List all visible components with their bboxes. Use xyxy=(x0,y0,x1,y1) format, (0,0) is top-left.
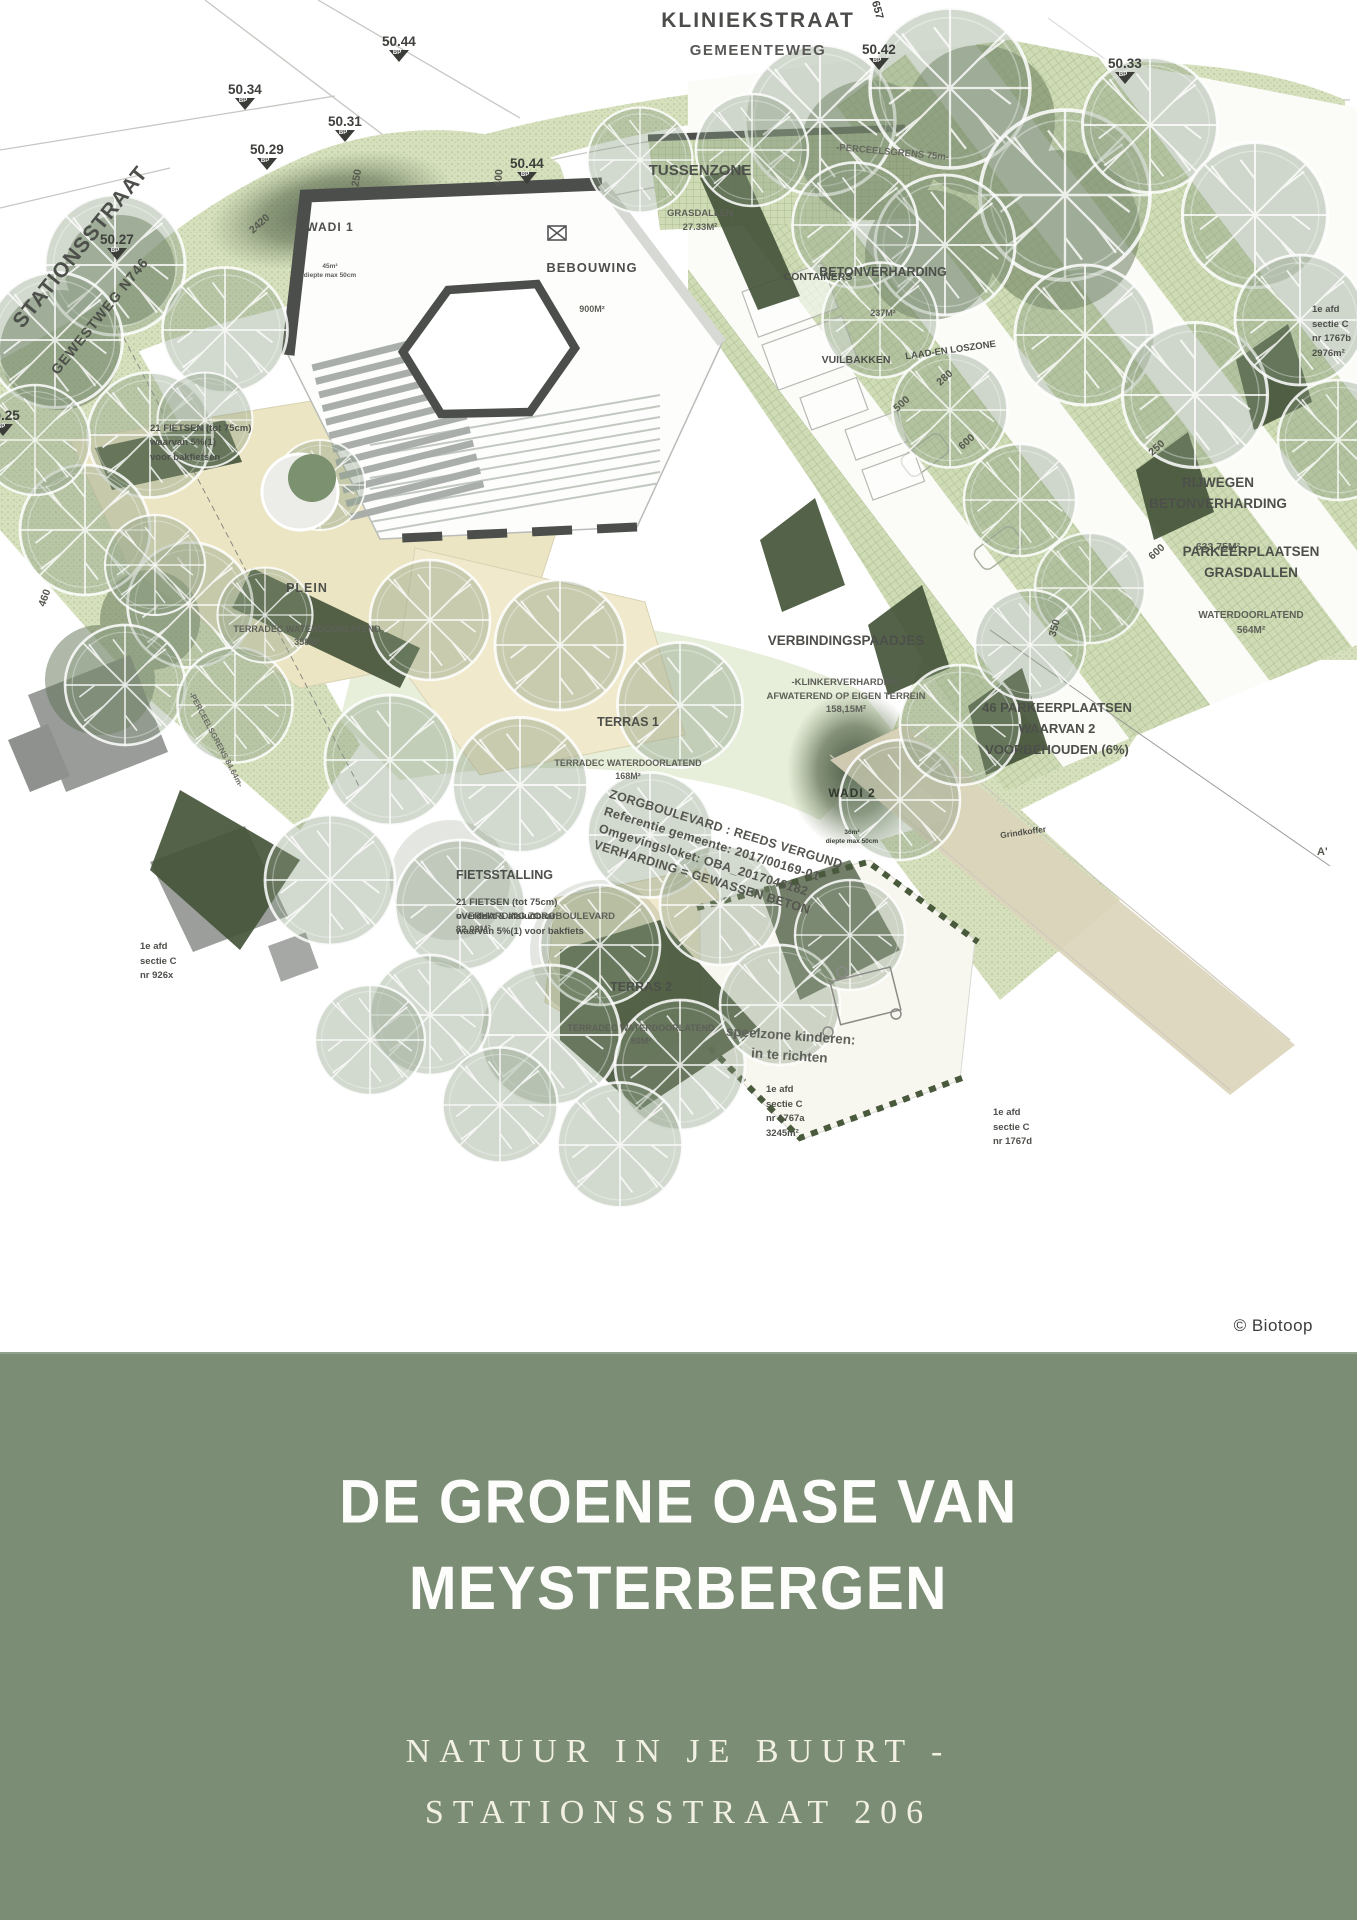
label-wadi2-sub: 36m² diepte max 50cm xyxy=(826,828,878,847)
label-perceelsgrens-top: -PERCEELSGRENS 75m- xyxy=(836,141,950,165)
spot-value: 50.33 xyxy=(1108,56,1142,71)
label-fietsen-plein: 21 FIETSEN (tot 75cm) waarvan 5%(1) voor… xyxy=(150,422,251,465)
spot-value: 657 xyxy=(869,0,885,20)
spot-value: 50.42 xyxy=(862,42,896,57)
label-fietsstalling-title: FIETSSTALLING xyxy=(456,866,615,884)
spot-elevation: 50.27BP xyxy=(100,232,134,260)
label-terras1: TERRAS 1 TERRADEC WATERDOORLATEND 168M² xyxy=(554,690,701,806)
label-wadi1: WADI 1 45m² diepte max 50cm xyxy=(304,196,356,304)
benchmark-icon: BP xyxy=(257,158,277,170)
label-zorgboulevard: ZORGBOULEVARD : REEDS VERGUND Referentie… xyxy=(591,786,844,925)
poster: KLINIEKSTRAAT GEMEENTEWEG STATIONSSTRAAT… xyxy=(0,0,1357,1920)
spot-value: 50.44 xyxy=(382,34,416,49)
label-terras2-title: TERRAS 2 xyxy=(567,978,714,996)
label-gemeenteweg: GEMEENTEWEG xyxy=(690,40,827,62)
banner: DE GROENE OASE VAN MEYSTERBERGEN NATUUR … xyxy=(0,1352,1357,1920)
label-parkeerplaatsen-46: 46 PARKEERPLAATSEN WAARVAN 2 VOORBEHOUDE… xyxy=(982,698,1132,760)
label-plein-sub: TERRADEC WATERDOORLATEND 358M² xyxy=(233,623,380,649)
label-parkeerplaatsen-title: PARKEERPLAATSEN GRASDALLEN xyxy=(1183,542,1320,584)
spot-value: 50.44 xyxy=(510,156,544,171)
benchmark-icon: BP xyxy=(107,248,127,260)
spot-value: 50.25 xyxy=(0,408,20,423)
label-terras1-title: TERRAS 1 xyxy=(554,713,701,731)
spot-elevation: 50.44BP xyxy=(510,156,544,184)
label-parkeerplaatsen: PARKEERPLAATSEN GRASDALLEN WATERDOORLATE… xyxy=(1183,519,1320,661)
banner-title: DE GROENE OASE VAN MEYSTERBERGEN xyxy=(0,1460,1357,1632)
label-verbindingspaadjes-sub: -KLINKERVERHARDING AFWATEREND OP EIGEN T… xyxy=(766,676,925,717)
spot-value: 50.27 xyxy=(100,232,134,247)
spot-elevation: 50.34BP xyxy=(228,82,262,110)
label-tussenzone-sub: GRASDALLEN 27.33M² xyxy=(649,207,752,235)
spot-elevation: 657 xyxy=(869,0,885,20)
label-betonverharding-sub: 237M² xyxy=(819,307,947,320)
site-plan: KLINIEKSTRAAT GEMEENTEWEG STATIONSSTRAAT… xyxy=(0,0,1357,1352)
label-fietsen-overdekt: 21 FIETSEN (tot 75cm) overdekt & afsluit… xyxy=(456,896,584,939)
label-grindkoffer: Grindkoffer xyxy=(999,823,1047,842)
label-betonverharding: BETONVERHARDING 237M² xyxy=(819,240,947,343)
label-plein-title: PLEIN xyxy=(233,579,380,597)
benchmark-icon: BP xyxy=(335,130,355,142)
label-parcel-1767a: 1e afd sectie C nr 1767a 3245m² xyxy=(766,1083,805,1142)
dimension: 400 xyxy=(492,169,505,188)
label-parcel-1767b: 1e afd sectie C nr 1767b 2976m² xyxy=(1312,303,1351,362)
label-terras2-sub: TERRADEC WATERDOORLATEND 80M² xyxy=(567,1022,714,1048)
benchmark-icon: BP xyxy=(0,424,13,436)
benchmark-icon: BP xyxy=(235,98,255,110)
label-wadi1-sub: 45m² diepte max 50cm xyxy=(304,262,356,281)
label-wadi2-title: WADI 2 xyxy=(826,785,878,802)
benchmark-icon: BP xyxy=(389,50,409,62)
credit-text: © Biotoop xyxy=(1234,1316,1313,1336)
label-containers: CONTAINERS xyxy=(784,270,853,285)
label-vuilbakken: VUILBAKKEN xyxy=(822,353,891,368)
label-parkeerplaatsen-sub: WATERDOORLATEND 564M² xyxy=(1183,609,1320,638)
spot-elevation: 50.25BP xyxy=(0,408,20,436)
dimension: 2420 xyxy=(247,212,272,237)
banner-subtitle: NATUUR IN JE BUURT - STATIONSSTRAAT 206 xyxy=(0,1722,1357,1843)
dimension: 600 xyxy=(956,432,977,453)
label-terras2: TERRAS 2 TERRADEC WATERDOORLATEND 80M² xyxy=(567,955,714,1071)
label-bebouwing-sub: 900M² xyxy=(546,303,637,316)
label-bebouwing-title: BEBOUWING xyxy=(546,259,637,278)
section-marker-label: A' xyxy=(1317,846,1328,858)
dimension: 500 xyxy=(891,394,912,415)
label-terras1-sub: TERRADEC WATERDOORLATEND 168M² xyxy=(554,757,701,783)
spot-elevation: 50.31BP xyxy=(328,114,362,142)
label-tussenzone-title: TUSSENZONE xyxy=(649,160,752,182)
label-parcel-1767d: 1e afd sectie C nr 1767d xyxy=(993,1106,1032,1150)
spot-value: 50.34 xyxy=(228,82,262,97)
benchmark-icon: BP xyxy=(1115,72,1135,84)
spot-value: 50.29 xyxy=(250,142,284,157)
spot-elevation: 50.44BP xyxy=(382,34,416,62)
label-wadi1-title: WADI 1 xyxy=(304,219,356,236)
spot-elevation: 50.29BP xyxy=(250,142,284,170)
dimension: 460 xyxy=(36,588,53,609)
label-parcel-926x: 1e afd sectie C nr 926x xyxy=(140,940,176,984)
label-perceelsgrens-left: -PERCEELSGRENS 84.64m- xyxy=(186,690,246,789)
dimension: 250 xyxy=(349,168,364,187)
label-plein: PLEIN TERRADEC WATERDOORLATEND 358M² xyxy=(233,556,380,672)
label-verbindingspaadjes: VERBINDINGSPAADJES -KLINKERVERHARDING AF… xyxy=(766,608,925,740)
benchmark-icon: BP xyxy=(517,172,537,184)
spot-elevation: 50.33BP xyxy=(1108,56,1142,84)
map-labels: KLINIEKSTRAAT GEMEENTEWEG STATIONSSTRAAT… xyxy=(0,0,1357,1352)
label-verbindingspaadjes-title: VERBINDINGSPAADJES xyxy=(766,631,925,651)
spot-value: 50.31 xyxy=(328,114,362,129)
label-kliniekstraat: KLINIEKSTRAAT xyxy=(661,6,855,36)
spot-elevation: 50.42BP xyxy=(862,42,896,70)
label-speelzone: speelzone kinderen: in te richten xyxy=(724,1022,856,1071)
label-bebouwing: BEBOUWING 900M² xyxy=(546,236,637,339)
benchmark-icon: BP xyxy=(869,58,889,70)
dimension: 280 xyxy=(934,368,955,389)
label-tussenzone: TUSSENZONE GRASDALLEN 27.33M² xyxy=(649,137,752,258)
dimension: 350 xyxy=(1047,618,1063,638)
label-rijwegen-title: RIJWEGEN BETONVERHARDING xyxy=(1149,473,1287,515)
